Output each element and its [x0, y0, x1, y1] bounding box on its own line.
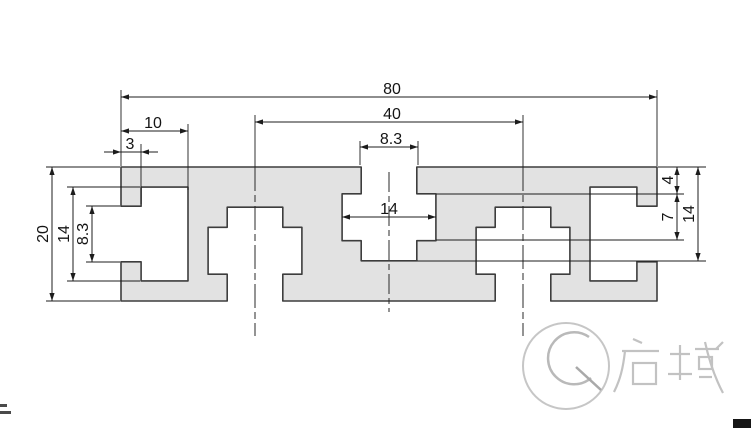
dim-end-slot-lip: 3 [126, 136, 135, 153]
drawing-canvas: 80 40 10 3 8.3 14 20 14 8.3 4 7 14 [0, 0, 751, 428]
edge-mark-corner [733, 419, 751, 428]
dim-slot-cavity-height: 7 [660, 212, 677, 221]
dim-top-slot-opening: 8.3 [380, 131, 402, 148]
dimension-labels: 80 40 10 3 8.3 14 20 14 8.3 4 7 14 [35, 81, 698, 245]
dim-overall-height: 20 [35, 225, 52, 243]
watermark-logo [523, 323, 723, 409]
dim-end-slot-cavity-height: 14 [56, 225, 73, 243]
dim-slot-neck-depth: 4 [660, 175, 677, 184]
page-edge-marks [0, 404, 751, 428]
edge-mark-left-2 [0, 411, 11, 414]
profile-drawing: 80 40 10 3 8.3 14 20 14 8.3 4 7 14 [0, 0, 751, 428]
logo-q-tail [576, 367, 601, 390]
dim-end-slot-depth: 10 [144, 115, 162, 132]
logo-circle [523, 323, 609, 409]
dim-overall-width: 80 [383, 81, 401, 98]
dim-top-slot-cavity-width: 14 [380, 201, 398, 218]
dim-slot-center-distance: 40 [383, 106, 401, 123]
logo-char-qi [614, 339, 659, 392]
edge-mark-left-1 [0, 404, 7, 407]
dim-slot-total-depth: 14 [681, 205, 698, 223]
dim-end-slot-opening: 8.3 [75, 223, 92, 245]
logo-char-yu [668, 342, 723, 393]
